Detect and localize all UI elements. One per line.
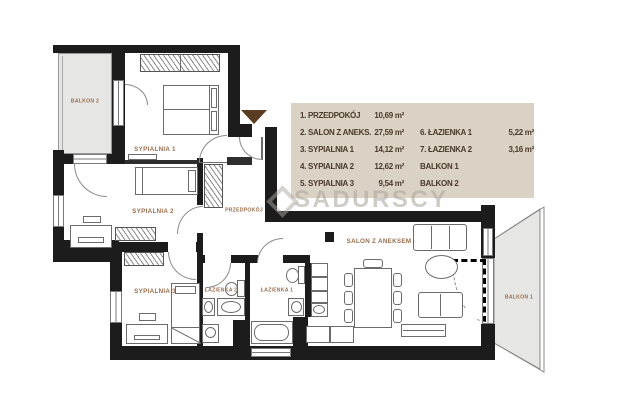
legend-cell xyxy=(496,111,534,128)
room-label-sypialnia3: SYPIALNIA 3 xyxy=(134,287,176,294)
room-label-sypialnia2: SYPIALNIA 2 xyxy=(132,207,174,214)
wall xyxy=(283,255,310,263)
balcony-2-railing xyxy=(62,56,63,151)
kitchen-unit xyxy=(311,291,328,303)
legend-cell: 6. ŁAZIENKA 1 xyxy=(404,128,496,145)
legend-cell xyxy=(496,162,534,179)
sofa-line xyxy=(431,226,432,249)
wall xyxy=(231,255,258,263)
door-arc xyxy=(177,206,203,234)
legend-cell: 1. PRZEDPOKÓJ xyxy=(300,111,370,128)
wall xyxy=(228,124,252,137)
door-arc xyxy=(125,84,148,105)
pillow xyxy=(211,88,217,108)
kitchen-counter xyxy=(330,326,354,343)
wardrobe xyxy=(204,164,223,208)
toilet-tank xyxy=(237,280,245,297)
bed-line xyxy=(142,167,143,195)
wall xyxy=(125,160,199,164)
sink-basin xyxy=(291,301,302,313)
wall xyxy=(117,242,168,252)
sink-basin xyxy=(204,301,213,313)
room-label-salon: SALON Z ANEKSEM xyxy=(347,237,412,244)
balcony-door xyxy=(73,154,107,164)
legend-box: 1. PRZEDPOKÓJ 10,69 m² 2. SALON Z ANEKS.… xyxy=(291,103,534,198)
chair xyxy=(393,309,402,323)
room-label-lazienka2: ŁAZIENKA 2 xyxy=(205,287,238,293)
room-label-lazienka1: ŁAZIENKA 1 xyxy=(261,287,294,293)
coffee-table xyxy=(425,255,458,279)
washing-machine-door xyxy=(205,327,216,338)
desk xyxy=(126,324,168,344)
pillow xyxy=(175,286,196,294)
bed-line xyxy=(209,86,210,134)
wall xyxy=(325,232,334,242)
kitchen-sink-basin xyxy=(313,305,325,314)
door-leaf xyxy=(199,162,227,163)
bathtub-basin xyxy=(254,324,289,341)
chair xyxy=(344,309,353,323)
chair xyxy=(393,273,402,287)
room-label-przedpokoj: PRZEDPOKÓJ xyxy=(225,207,263,213)
wall xyxy=(481,324,495,360)
legend-cell: 2. SALON Z ANEKS. xyxy=(300,128,370,145)
legend-cell: 3,16 m² xyxy=(496,145,534,162)
balcony-door xyxy=(113,80,124,126)
entrance-marker-icon xyxy=(241,110,267,124)
wardrobe-divider xyxy=(180,54,181,72)
door-arc xyxy=(168,252,196,280)
chair xyxy=(344,273,353,287)
sofa-line xyxy=(440,294,441,316)
legend-cell xyxy=(496,179,534,196)
wall xyxy=(53,45,240,53)
legend-cell: 14,12 m² xyxy=(370,145,404,162)
legend-cell: 27,59 m² xyxy=(370,128,404,145)
desk-drawer xyxy=(134,335,160,340)
shelf xyxy=(83,216,101,223)
legend-cell: 10,69 m² xyxy=(370,111,404,128)
wall xyxy=(228,45,240,131)
wall xyxy=(233,320,248,348)
kitchen-unit xyxy=(311,263,328,277)
door-arc xyxy=(199,135,227,162)
window xyxy=(483,228,493,256)
legend-cell: 5,22 m² xyxy=(496,128,534,145)
window xyxy=(53,195,64,227)
shower-basin xyxy=(221,301,241,313)
chair xyxy=(344,291,353,305)
wall xyxy=(197,233,203,255)
bed-line xyxy=(163,109,209,110)
chair xyxy=(393,291,402,305)
bed-line xyxy=(171,327,200,328)
toilet xyxy=(286,268,299,283)
floorplan-canvas: 1. PRZEDPOKÓJ 10,69 m² 2. SALON Z ANEKS.… xyxy=(0,0,620,400)
legend-cell: BALKON 1 xyxy=(404,162,496,179)
door-arc xyxy=(257,238,283,263)
kitchen-unit xyxy=(311,277,328,291)
legend-cell: 4. SYPIALNIA 2 xyxy=(300,162,370,179)
tv-bench-line xyxy=(403,330,444,331)
dining-table xyxy=(354,268,392,328)
door-arc xyxy=(74,164,107,197)
pillow xyxy=(188,170,196,192)
wall xyxy=(110,346,495,360)
balcony-1 xyxy=(490,203,550,375)
desk-drawer xyxy=(78,237,104,243)
shelf xyxy=(139,313,156,321)
room-label-balkon1: BALKON 1 xyxy=(505,294,533,300)
chair xyxy=(363,259,383,268)
wall xyxy=(107,154,125,164)
legend-cell xyxy=(404,111,496,128)
kitchen-counter xyxy=(306,326,330,343)
legend-cell: 12,62 m² xyxy=(370,162,404,179)
room-label-sypialnia1: SYPIALNIA 1 xyxy=(134,145,176,152)
legend-cell: 7. ŁAZIENKA 2 xyxy=(404,145,496,162)
legend-cell: 3. SYPIALNIA 1 xyxy=(300,145,370,162)
pillow xyxy=(211,111,217,131)
sofa-line xyxy=(449,226,450,249)
window xyxy=(251,348,291,357)
room-label-balkon2: BALKON 2 xyxy=(71,98,99,104)
bench xyxy=(128,154,157,160)
toilet-tank xyxy=(298,266,305,284)
wall xyxy=(227,157,252,165)
wardrobe xyxy=(115,227,156,241)
wardrobe xyxy=(124,252,164,266)
sofa xyxy=(413,224,467,251)
watermark: SADURSCY xyxy=(294,186,449,214)
window xyxy=(110,291,122,323)
